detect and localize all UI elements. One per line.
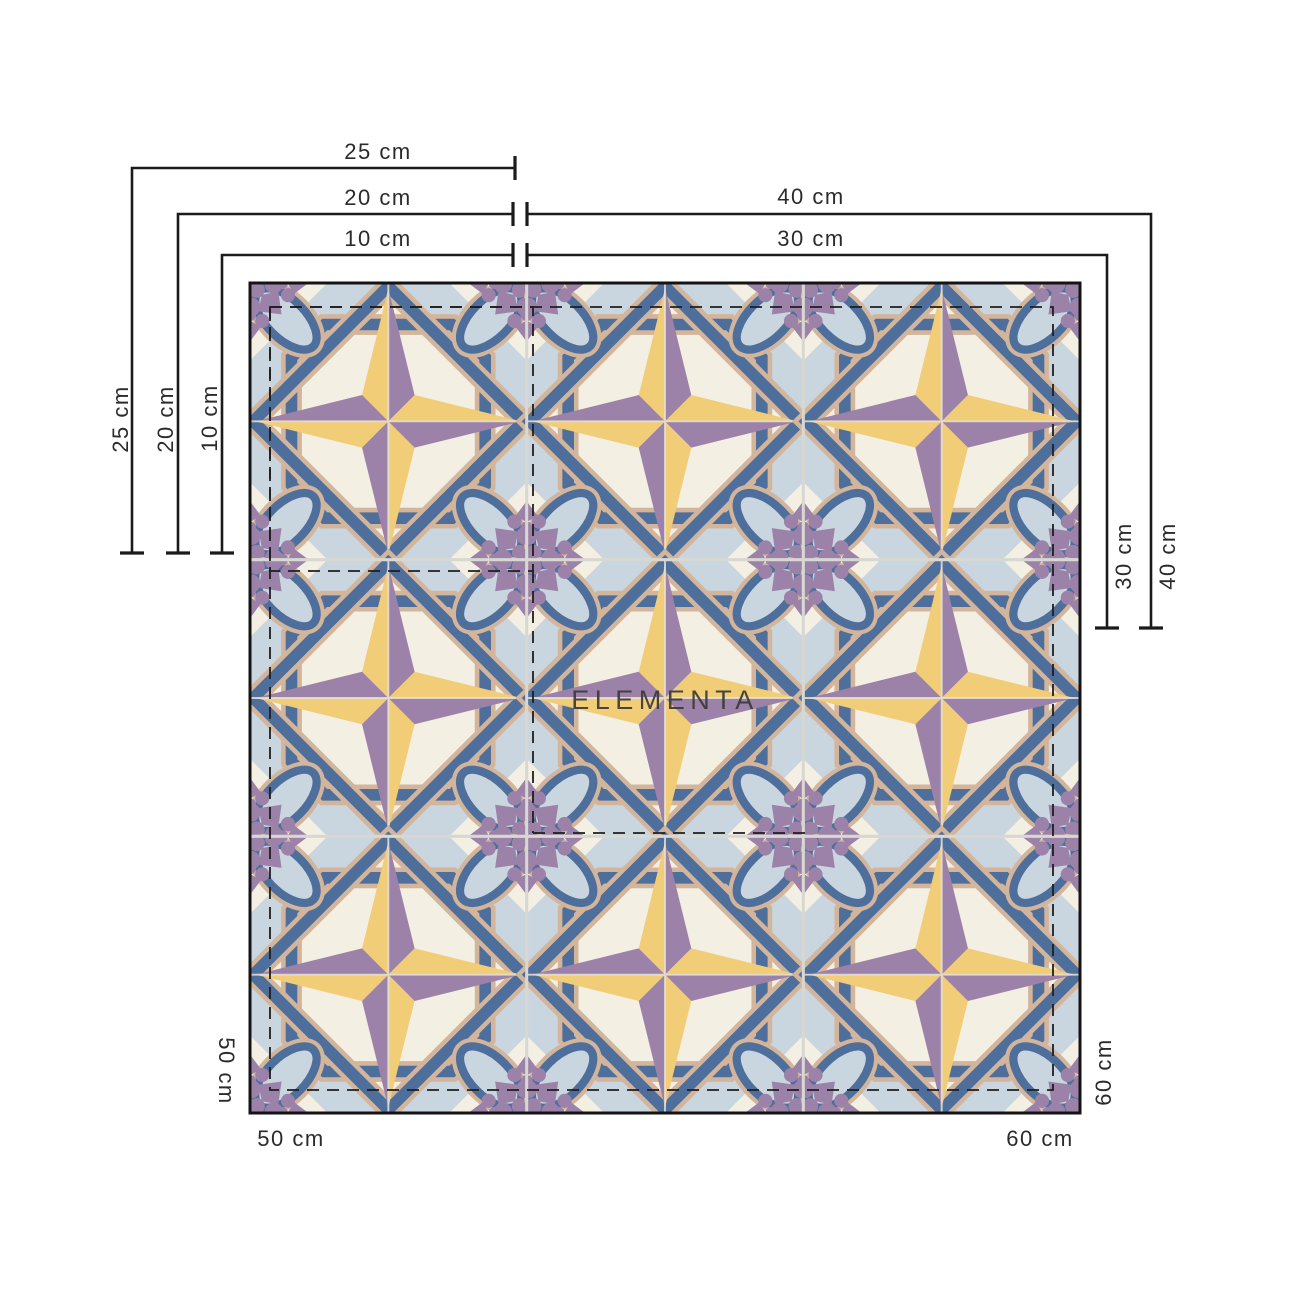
label-left-10cm: 10 cm <box>197 384 222 451</box>
label-top-40cm: 40 cm <box>777 184 844 209</box>
label-bottomleft-50cm: 50 cm <box>257 1126 324 1151</box>
label-right-40cm: 40 cm <box>1155 522 1180 589</box>
label-top-25cm: 25 cm <box>344 139 411 164</box>
label-top-10cm: 10 cm <box>344 226 411 251</box>
label-left-25cm: 25 cm <box>108 385 133 452</box>
label-bottomright-60cm-side: 60 cm <box>1091 1038 1116 1105</box>
label-top-20cm: 20 cm <box>344 185 411 210</box>
label-top-30cm: 30 cm <box>777 226 844 251</box>
label-bottomright-60cm: 60 cm <box>1006 1126 1073 1151</box>
mockup-canvas: 25 cm 20 cm 10 cm 40 cm 30 cm 25 cm 20 c… <box>0 0 1291 1291</box>
brand-watermark: ELEMENTA <box>571 685 759 715</box>
label-bottomleft-50cm-side: 50 cm <box>214 1037 239 1104</box>
label-right-30cm: 30 cm <box>1111 522 1136 589</box>
tile-mockup-sheet: 25 cm 20 cm 10 cm 40 cm 30 cm 25 cm 20 c… <box>0 0 1291 1291</box>
label-left-20cm: 20 cm <box>153 385 178 452</box>
